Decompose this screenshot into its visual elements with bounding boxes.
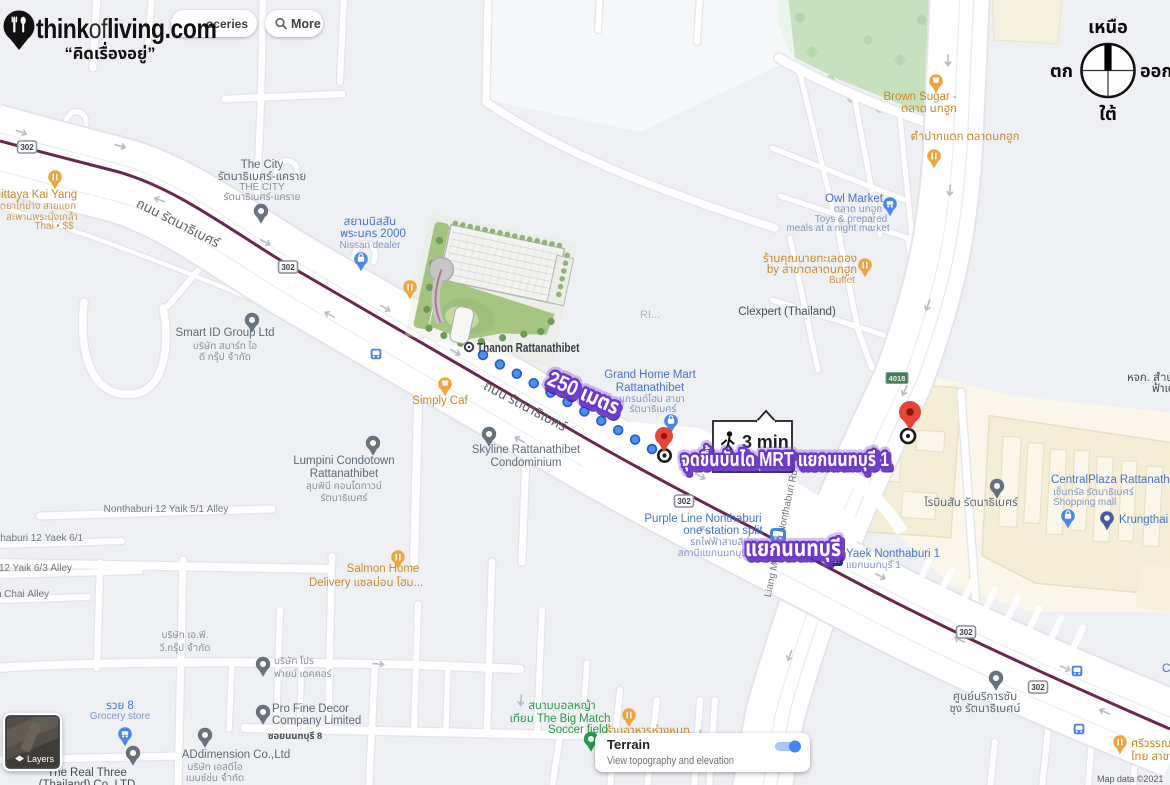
svg-text:302: 302: [959, 627, 973, 639]
svg-text:รัตนาธิเบศร์-แคราย: รัตนาธิเบศร์-แคราย: [224, 189, 301, 205]
svg-text:สถานีแยกนนทบุรี: สถานีแยกนนทบุรี: [678, 545, 747, 561]
svg-text:ซุง รัตนาธิเบศน์: ซุง รัตนาธิเบศน์: [950, 701, 1021, 718]
svg-text:n Chai Alley: n Chai Alley: [0, 586, 49, 602]
svg-text:Map data ©2021: Map data ©2021: [1097, 773, 1163, 785]
svg-text:Company Limited: Company Limited: [272, 713, 361, 730]
svg-text:ฟ้าเด: ฟ้าเด: [1152, 381, 1170, 398]
svg-text:Shopping mall: Shopping mall: [1053, 494, 1116, 510]
svg-text:Thai • $$: Thai • $$: [34, 218, 74, 234]
svg-text:meals at a night market: meals at a night market: [786, 220, 889, 236]
svg-text:ซอยนนทบุรี 8: ซอยนนทบุรี 8: [268, 730, 322, 744]
svg-text:เบนซ์ช่น จำกัด: เบนซ์ช่น จำกัด: [186, 770, 244, 785]
svg-text:4018: 4018: [889, 374, 906, 385]
svg-text:วี.กรุ๊ป จำกัด: วี.กรุ๊ป จำกัด: [159, 640, 211, 656]
svg-text:แยกนนทบุรี 1: แยกนนทบุรี 1: [846, 557, 901, 573]
svg-text:Nissan dealer: Nissan dealer: [340, 237, 402, 253]
svg-text:รัตนาธิเบศร์: รัตนาธิเบศร์: [321, 490, 368, 506]
svg-text:โรบินสัน รัตนาธิเบศร์: โรบินสัน รัตนาธิเบศร์: [924, 495, 1018, 512]
svg-text:“คิดเรื่องอยู่”: “คิดเรื่องอยู่”: [65, 41, 156, 67]
svg-text:302: 302: [1031, 682, 1045, 694]
svg-text:302: 302: [281, 262, 295, 274]
svg-text:ใต้: ใต้: [1099, 102, 1117, 129]
svg-text:Condominium: Condominium: [491, 455, 562, 472]
svg-text:CIM: CIM: [1162, 661, 1170, 678]
svg-text:302: 302: [677, 496, 691, 508]
svg-text:ฟายน์ เดคคอร์: ฟายน์ เดคคอร์: [274, 666, 332, 682]
svg-text:Delivery แซลม่อน โฮม...: Delivery แซลม่อน โฮม...: [309, 575, 423, 592]
svg-text:ตลาด นกฮูก: ตลาด นกฮูก: [901, 101, 957, 118]
svg-text:ตก: ตก: [1050, 59, 1073, 86]
svg-text:เหนือ: เหนือ: [1088, 15, 1128, 42]
svg-text:RI...: RI...: [640, 306, 660, 323]
svg-text:Simply Caf: Simply Caf: [412, 393, 468, 410]
svg-text:Thanon Rattanathibet: Thanon Rattanathibet: [477, 340, 580, 359]
svg-text:Layers: Layers: [27, 753, 55, 767]
svg-text:(Thailand) Co.,LTD: (Thailand) Co.,LTD: [39, 777, 136, 785]
svg-text:ตำปากแตก ตลาดนกฮูก: ตำปากแตก ตลาดนกฮูก: [911, 129, 1020, 146]
svg-text:Clexpert (Thailand): Clexpert (Thailand): [738, 304, 836, 321]
svg-text:ไทย สาขา: ไทย สาขา: [1130, 749, 1170, 766]
svg-text:แยกนนทบุรี: แยกนนทบุรี: [745, 533, 841, 567]
svg-text:ดี กรุ๊ป จำกัด: ดี กรุ๊ป จำกัด: [199, 349, 251, 365]
svg-text:nthaburi 12 Yaek 6/1: nthaburi 12 Yaek 6/1: [0, 530, 83, 546]
svg-text:Grocery store: Grocery store: [90, 708, 151, 724]
svg-text:Krungthai B: Krungthai B: [1119, 512, 1170, 529]
svg-text:Buffet: Buffet: [829, 272, 855, 288]
svg-text:aburi 12 Yaik 6/3 Alley: aburi 12 Yaik 6/3 Alley: [0, 560, 72, 576]
svg-text:ออก: ออก: [1140, 59, 1170, 86]
svg-text:จุดขึ้นบันได MRT แยกนนทบุรี 1: จุดขึ้นบันได MRT แยกนนทบุรี 1: [681, 445, 889, 475]
svg-text:More: More: [291, 15, 321, 34]
svg-text:Nonthaburi 12 Yaik 5/1 Alley: Nonthaburi 12 Yaik 5/1 Alley: [104, 501, 229, 517]
svg-text:302: 302: [20, 142, 34, 154]
svg-text:View topography and elevation: View topography and elevation: [607, 752, 734, 769]
